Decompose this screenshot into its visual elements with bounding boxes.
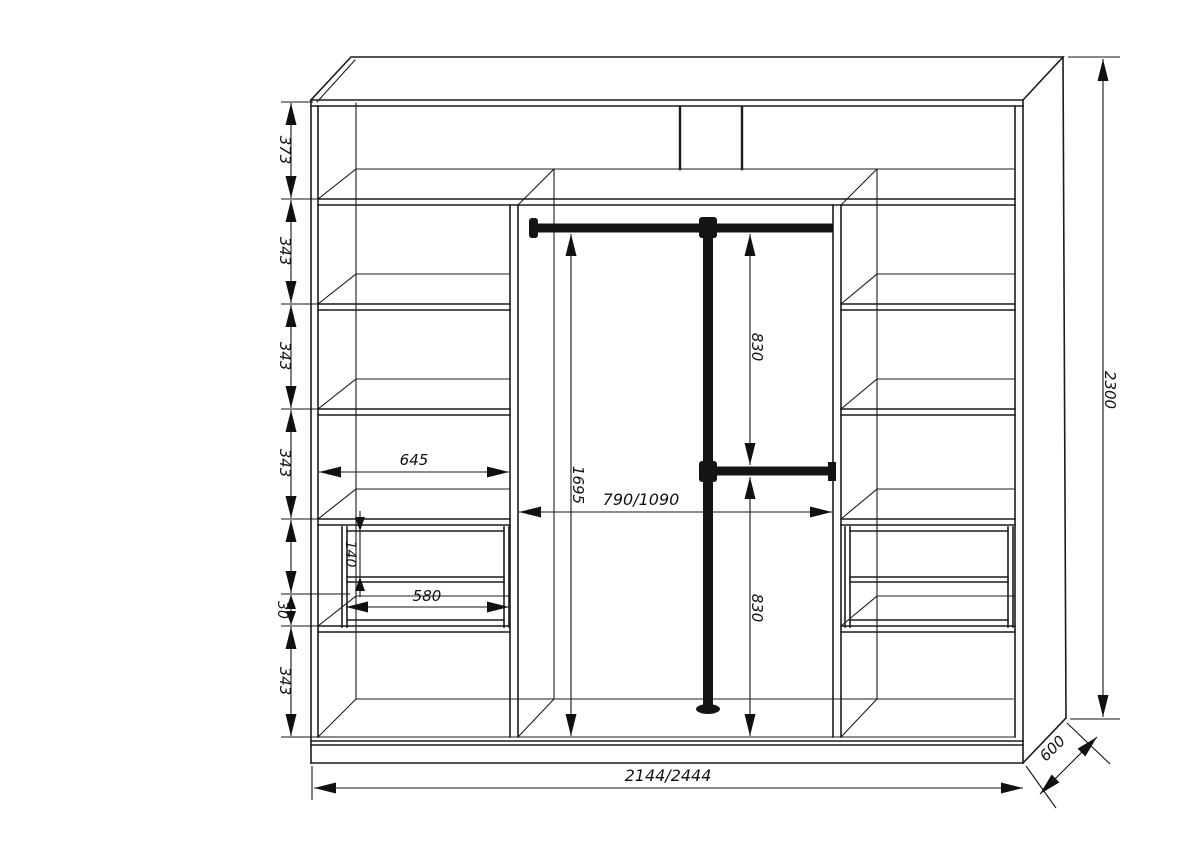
dim-label-343-a: 343	[276, 237, 294, 266]
dim-rod-height: 1695	[569, 234, 587, 736]
dim-lower-gap: 830	[748, 477, 766, 736]
dim-drawer-width: 580	[346, 587, 509, 607]
dim-label-140: 140	[342, 541, 358, 568]
dim-label-600: 600	[1036, 732, 1069, 765]
dim-label-830-upper: 830	[748, 333, 766, 362]
dim-center-width: 790/1090	[519, 490, 832, 512]
dim-label-790-1090: 790/1090	[603, 490, 680, 509]
partitions	[510, 169, 877, 737]
rod-end-cap	[529, 218, 538, 238]
drawing-svg: 373 343 343 343 30 343 140 580 645 790/1…	[0, 0, 1200, 849]
top-shelf	[318, 107, 1015, 205]
cabinet-frame	[311, 57, 1066, 763]
dim-overall-depth: 600	[1026, 723, 1110, 808]
dim-upper-gap: 830	[748, 234, 766, 465]
dim-drawer-height: 140	[342, 511, 365, 597]
dim-label-1695: 1695	[569, 466, 587, 504]
dim-label-2144-2444: 2144/2444	[625, 766, 712, 785]
dim-label-2300: 2300	[1101, 371, 1119, 409]
dim-left-chain: 373 343 343 343 30 343	[274, 102, 350, 737]
dim-label-373: 373	[276, 136, 294, 165]
dim-label-30: 30	[274, 601, 290, 619]
dim-label-645: 645	[400, 451, 429, 469]
wardrobe-dimension-drawing: 373 343 343 343 30 343 140 580 645 790/1…	[0, 0, 1200, 849]
right-shelves	[841, 274, 1015, 632]
dim-label-580: 580	[413, 587, 442, 605]
top-panel	[311, 57, 1063, 100]
dim-label-343-b: 343	[276, 342, 294, 371]
left-drawers	[342, 527, 509, 627]
dim-label-343-d: 343	[276, 667, 294, 696]
dim-label-830-lower: 830	[748, 594, 766, 623]
dim-shelf-width: 645	[319, 451, 509, 472]
dim-label-343-c: 343	[276, 449, 294, 478]
right-drawers	[845, 527, 1013, 627]
dim-overall-width: 2144/2444	[312, 766, 1023, 800]
dim-overall-height: 2300	[1068, 57, 1120, 719]
tube-foot	[696, 704, 720, 714]
